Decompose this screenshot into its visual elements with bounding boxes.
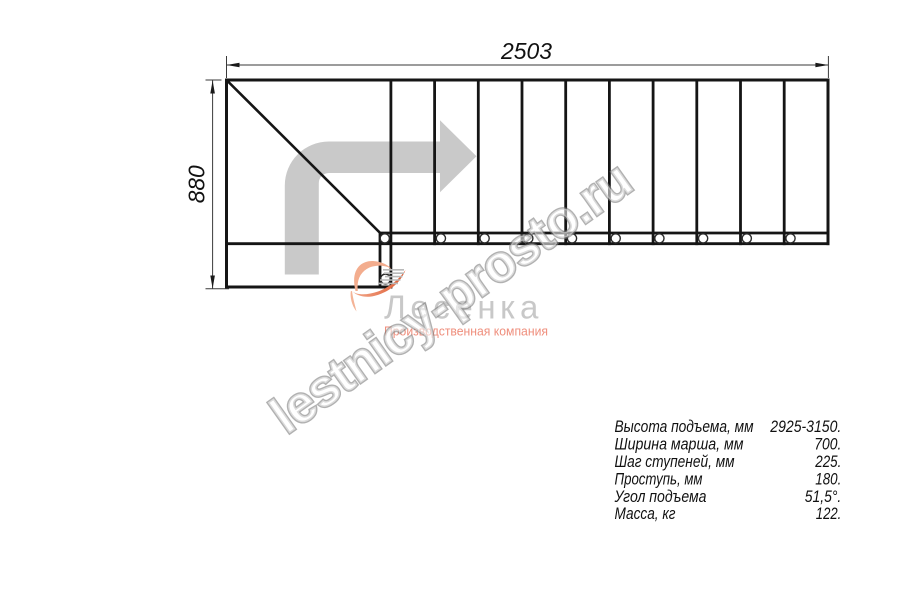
- svg-text:Масса, кг: Масса, кг: [615, 504, 676, 523]
- svg-text:880: 880: [184, 165, 210, 203]
- svg-text:Шаг ступеней, мм: Шаг ступеней, мм: [615, 452, 735, 471]
- svg-text:225.: 225.: [815, 452, 842, 471]
- svg-text:Ширина марша, мм: Ширина марша, мм: [615, 435, 744, 454]
- svg-text:2925-3150.: 2925-3150.: [769, 417, 841, 436]
- svg-text:51,5°.: 51,5°.: [805, 487, 842, 506]
- svg-text:2503: 2503: [500, 38, 552, 64]
- svg-text:700.: 700.: [814, 435, 841, 454]
- svg-text:Угол подъема: Угол подъема: [614, 487, 707, 506]
- svg-text:122.: 122.: [816, 504, 842, 523]
- svg-text:Высота подъема, мм: Высота подъема, мм: [615, 417, 754, 436]
- svg-text:Проступь, мм: Проступь, мм: [615, 469, 703, 488]
- svg-text:180.: 180.: [815, 469, 841, 488]
